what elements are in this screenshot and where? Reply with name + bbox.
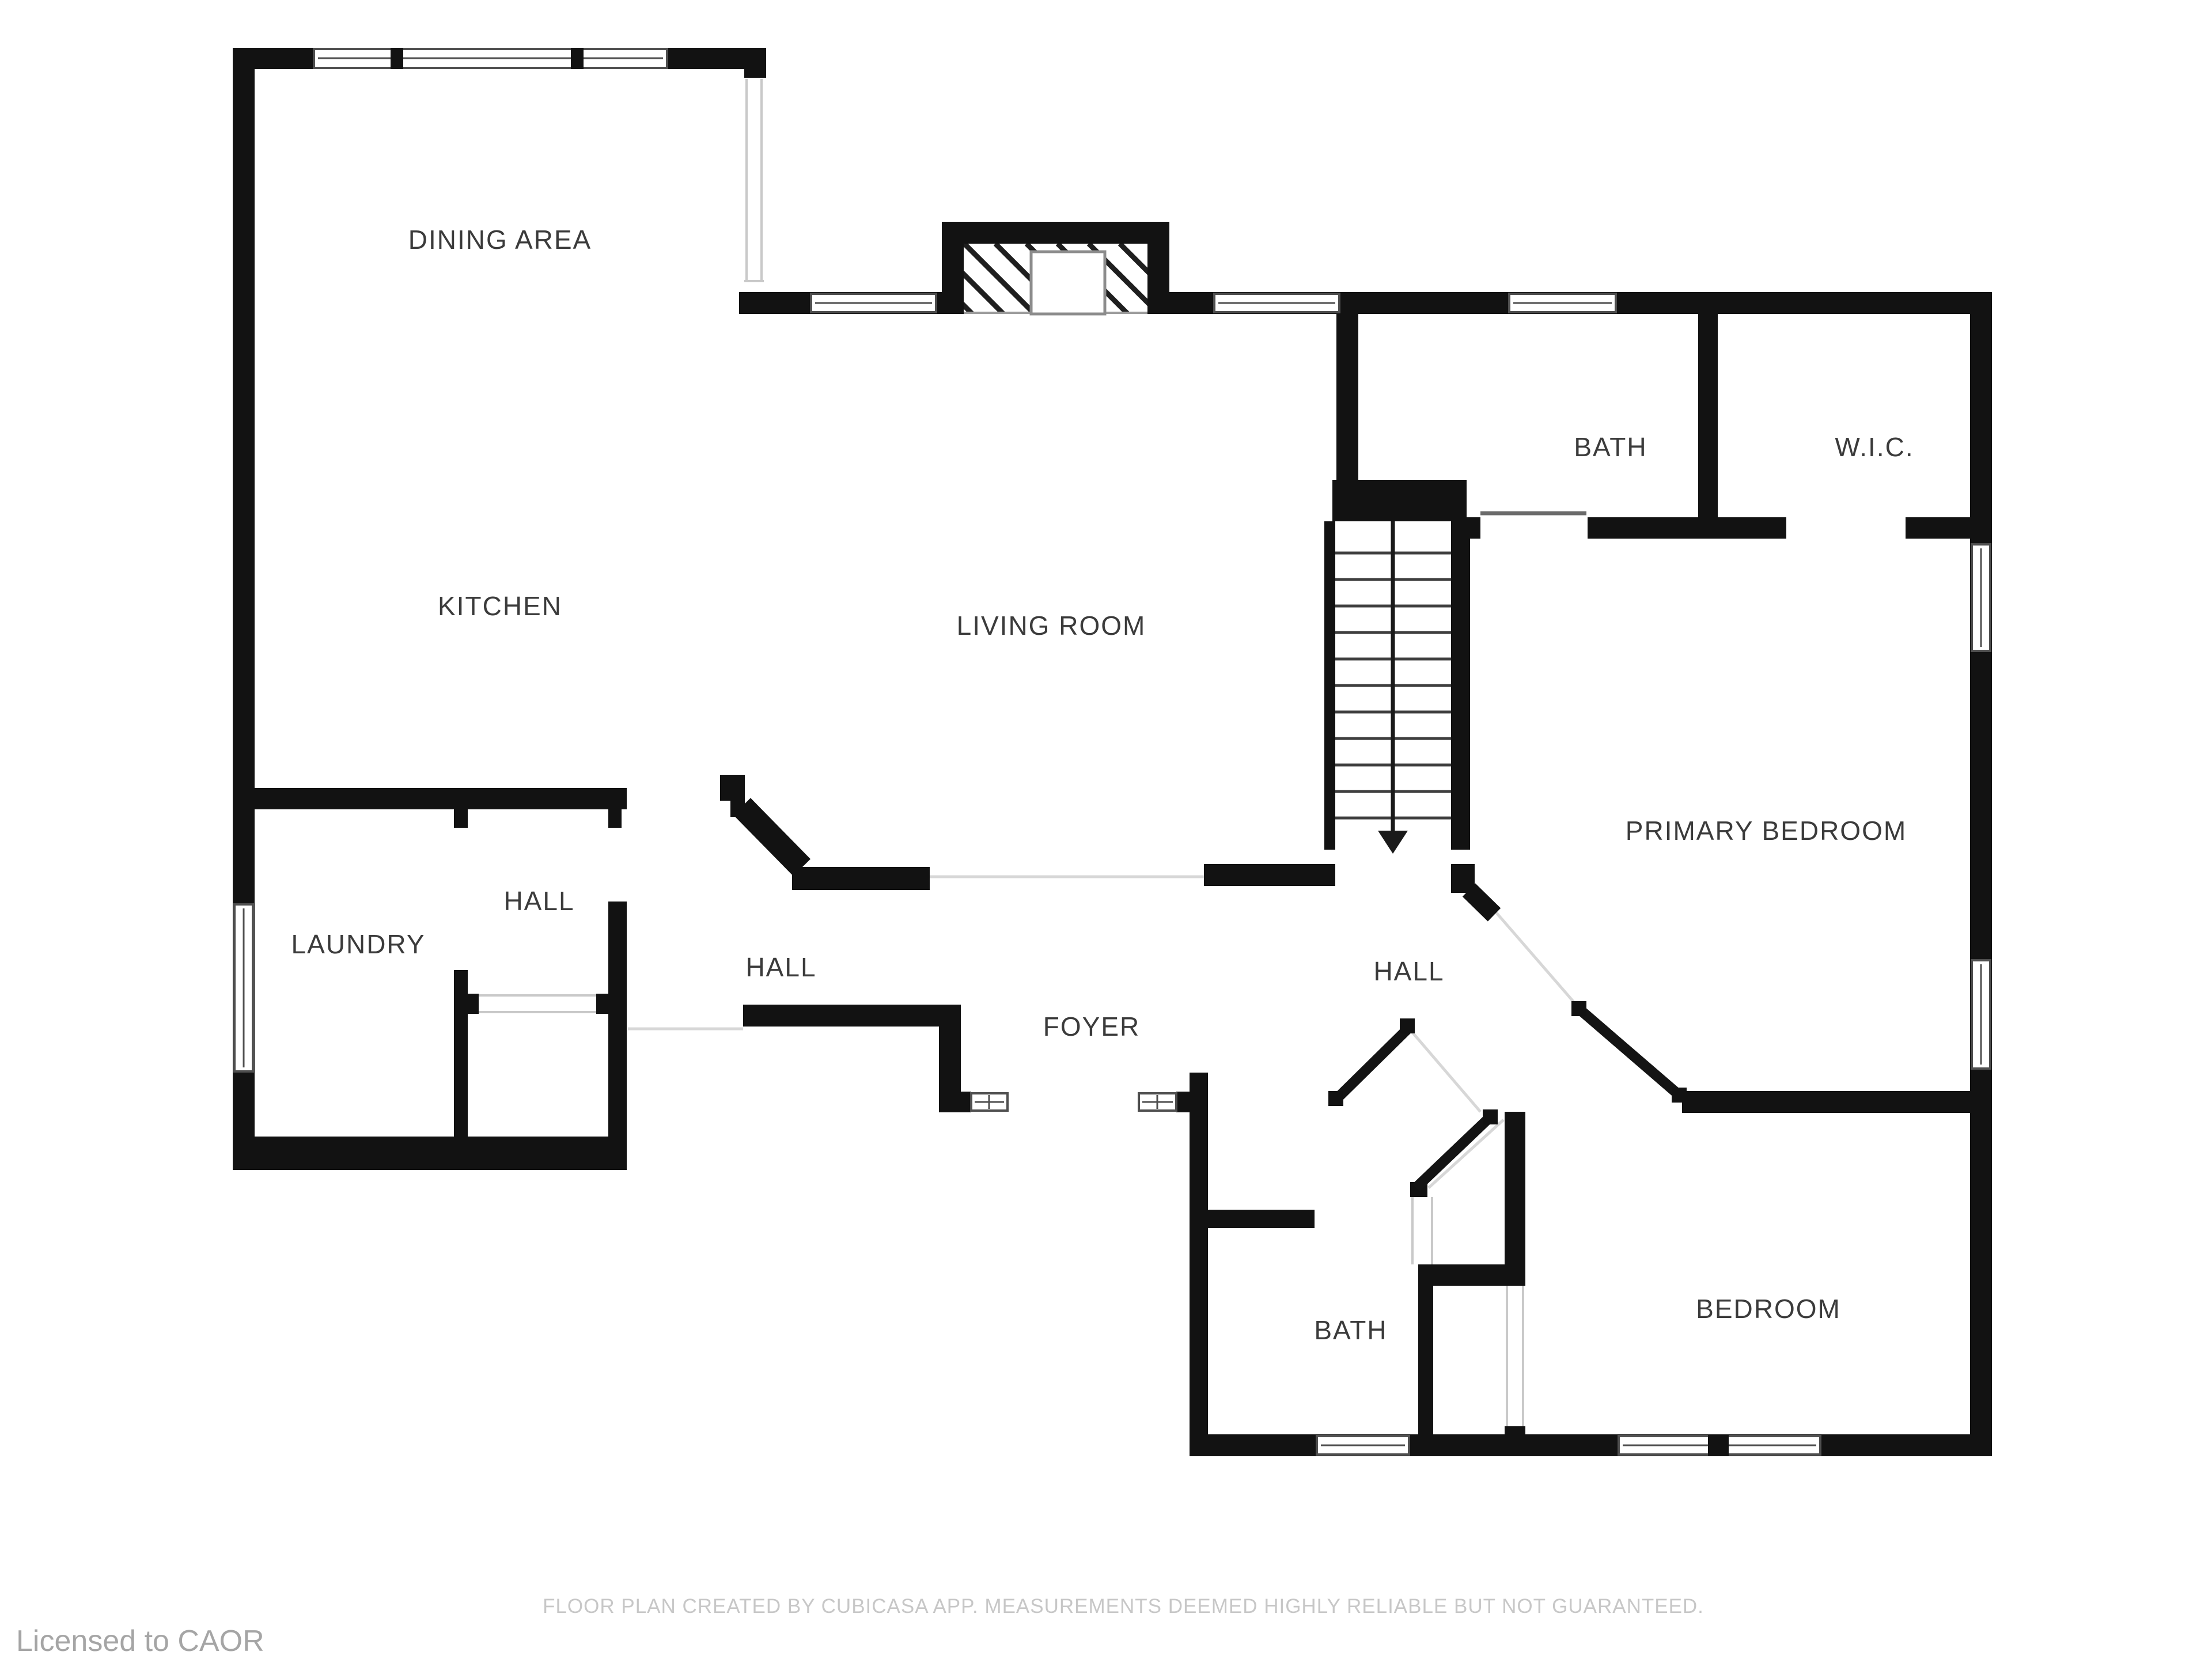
room-label-hall-east: HALL: [1373, 956, 1444, 986]
room-label-foyer: FOYER: [1043, 1012, 1140, 1041]
laundry-window: [234, 904, 253, 1071]
door-pivot: [1483, 1109, 1498, 1124]
license-watermark: Licensed to CAOR: [16, 1624, 264, 1658]
diagonal-walls: [742, 806, 1494, 915]
room-label-wic: W.I.C.: [1835, 432, 1914, 462]
bedroom-window: [1619, 1434, 1820, 1456]
hall-door-leaf: [1336, 1028, 1408, 1099]
room-label-living: LIVING ROOM: [957, 611, 1146, 641]
windows: [234, 48, 1990, 1456]
door-pivot: [1571, 1001, 1586, 1016]
room-label-bedroom: BEDROOM: [1696, 1294, 1841, 1324]
door-pivot: [1672, 1088, 1687, 1103]
bath-lower-door-leaf: [1416, 1116, 1491, 1188]
doors: [1328, 513, 1687, 1188]
bath-upper-window: [1509, 294, 1616, 312]
footer-disclaimer: FLOOR PLAN CREATED BY CUBICASA APP. MEAS…: [543, 1595, 1704, 1618]
exterior-walls: [233, 48, 1992, 1456]
door-pivot: [1328, 1091, 1343, 1106]
primary-bedroom-door-leaf: [1580, 1009, 1680, 1096]
dining-window: [314, 48, 667, 69]
foyer-sidelight-left: [971, 1093, 1007, 1111]
room-label-dining: DINING AREA: [408, 225, 592, 255]
room-label-primary-bedroom: PRIMARY BEDROOM: [1626, 816, 1907, 846]
primary-bedroom-window-upper: [1972, 544, 1990, 651]
living-window-right: [1214, 294, 1339, 312]
firebox: [1031, 252, 1105, 314]
stair-direction-arrow-icon: [1378, 831, 1408, 854]
stair-corner-diagonal-wall: [1469, 890, 1494, 915]
room-label-laundry: LAUNDRY: [291, 929, 426, 959]
living-window-left: [811, 294, 936, 312]
staircase: [1335, 521, 1451, 854]
kitchen-hall-diagonal-wall: [742, 806, 802, 868]
foyer-sidelight-right: [1139, 1093, 1176, 1111]
room-label-bath-lower: BATH: [1314, 1315, 1387, 1345]
room-labels: DINING AREA KITCHEN LIVING ROOM BATH W.I…: [291, 225, 1914, 1345]
room-label-hall-main: HALL: [745, 952, 816, 982]
interior-walls: [454, 314, 1992, 1435]
bath-lower-window: [1317, 1436, 1409, 1455]
primary-bedroom-window-lower: [1972, 960, 1990, 1069]
fireplace: [902, 222, 1190, 314]
door-swing-line: [1411, 1031, 1480, 1112]
door-swing-line: [1429, 1120, 1503, 1188]
door-swing-lines: [1411, 892, 1576, 1188]
floor-plan-canvas: DINING AREA KITCHEN LIVING ROOM BATH W.I…: [0, 0, 2212, 1659]
door-pivot: [1400, 1018, 1415, 1033]
room-label-bath-upper: BATH: [1574, 432, 1647, 462]
room-label-hall-small: HALL: [503, 886, 574, 916]
room-label-kitchen: KITCHEN: [438, 591, 562, 621]
